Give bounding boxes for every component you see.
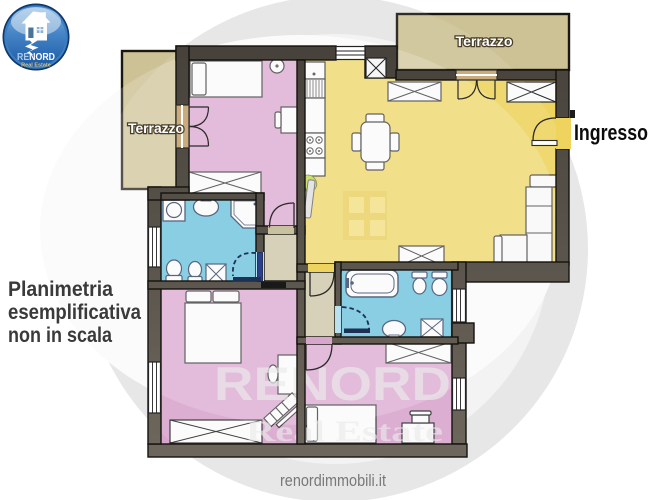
svg-text:RENORD: RENORD (17, 51, 55, 63)
svg-text:Planimetria: Planimetria (8, 277, 114, 301)
svg-text:Terrazzo: Terrazzo (456, 33, 513, 49)
svg-text:esemplificativa: esemplificativa (8, 300, 142, 324)
svg-text:Real Estate: Real Estate (246, 415, 443, 448)
svg-text:renordimmobili.it: renordimmobili.it (280, 471, 386, 490)
svg-text:Terrazzo: Terrazzo (128, 120, 184, 136)
svg-text:Real Estate: Real Estate (21, 63, 51, 69)
svg-text:Ingresso: Ingresso (574, 120, 648, 145)
svg-text:RENORD: RENORD (214, 357, 451, 410)
svg-text:non in scala: non in scala (8, 323, 113, 347)
